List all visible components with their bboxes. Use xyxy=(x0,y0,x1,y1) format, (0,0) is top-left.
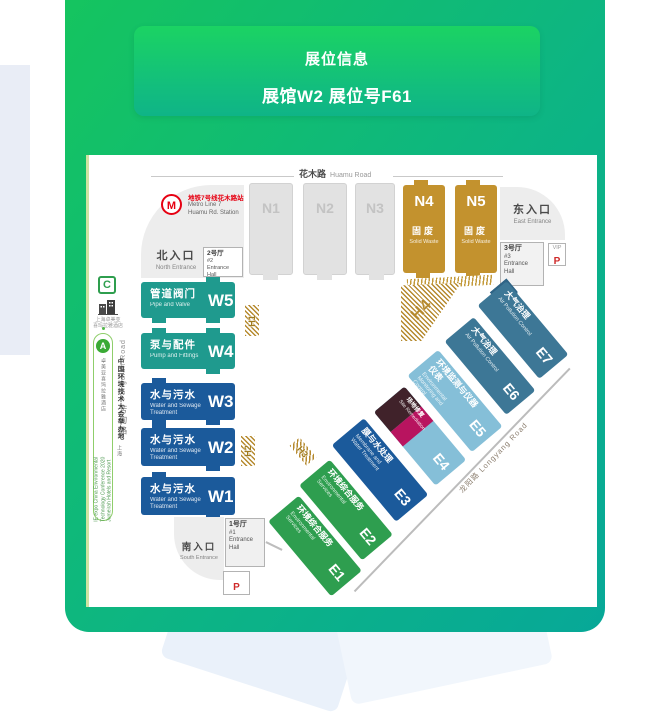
east-entrance-plaza: 东入口 East Entrance xyxy=(500,187,565,240)
connector-H1: H1 xyxy=(245,305,259,336)
gate xyxy=(206,368,220,374)
huamu-road-line-left xyxy=(151,176,294,177)
metro-logo-icon: M xyxy=(161,194,182,215)
gate xyxy=(206,328,220,334)
gate xyxy=(206,317,220,323)
legend-c-badge: C xyxy=(98,276,116,294)
hall-N2: N2 xyxy=(303,183,347,275)
conference-legend-pill: A 中国环境技术大会举办地 上海卓美亚喜玛拉雅酒店 IE expo China … xyxy=(93,333,113,521)
bg-shape-left xyxy=(0,65,30,355)
vip-parking-box: VIP P xyxy=(548,243,566,266)
gate xyxy=(152,378,166,384)
gate xyxy=(152,423,166,429)
hall-N4: N4 固废 Solid Waste xyxy=(403,185,445,273)
hall-W3: 水与污水Water and Sewage Treatment W3 xyxy=(141,383,235,420)
hotel-building-icon xyxy=(98,298,118,315)
gate xyxy=(152,317,166,323)
hall-W2: 水与污水Water and Sewage Treatment W2 xyxy=(141,428,235,466)
gate xyxy=(206,277,220,283)
conference-name-english: IE expo China Environmental Technology C… xyxy=(93,463,113,521)
north-entrance-label: 北入口 North Entrance xyxy=(145,247,207,271)
hall-N1: N1 xyxy=(249,183,293,275)
hall-W4: 泵与配件Pump and Fittings W4 xyxy=(141,333,235,369)
conference-name-vertical: 中国环境技术大会举办地 上海卓美亚喜玛拉雅酒店 xyxy=(95,358,127,462)
south-entrance-plaza: 南入口 South Entrance xyxy=(174,517,224,580)
south-parking-box: P xyxy=(223,571,250,595)
entrance-hall-2-box: 2号厅 #2 Entrance Hall xyxy=(203,247,243,277)
hotel-name-caption: 上海卓美亚 喜玛拉雅酒店 xyxy=(91,317,125,330)
gate xyxy=(152,472,166,478)
connector-H3: H3 xyxy=(290,437,317,465)
booth-info-title: 展位信息 xyxy=(134,26,540,69)
hall-W5: 管道阀门Pipe and Valve W5 xyxy=(141,282,235,318)
hall1-e1-connector xyxy=(265,541,282,551)
legend-link-dot xyxy=(102,327,105,330)
floorplan-map: 花木路Huamu Road M 地铁7号线花木路站 Metro Line 7 H… xyxy=(86,155,597,607)
gate xyxy=(206,465,220,471)
gate xyxy=(414,180,428,186)
connector-H2: H2 xyxy=(241,436,255,466)
booth-info-panel: 展位信息 展馆W2 展位号F61 花木路Huamu Road M 地铁7号线花木… xyxy=(65,0,605,632)
hall-N5: N5 固废 Solid Waste xyxy=(455,185,497,273)
gate xyxy=(152,328,166,334)
huamu-road-label: 花木路Huamu Road xyxy=(299,167,371,180)
conference-a-badge: A xyxy=(96,339,110,353)
gate xyxy=(416,272,430,278)
gate xyxy=(466,180,480,186)
gate xyxy=(206,419,220,425)
huamu-road-line-right xyxy=(393,176,503,177)
entrance-hall-1-box: 1号厅 #1 Entrance Hall xyxy=(225,518,265,567)
hall-W1: 水与污水Water and Sewage Treatment W1 xyxy=(141,477,235,515)
hall-N3: N3 xyxy=(355,183,395,275)
booth-info-card: 展位信息 展馆W2 展位号F61 xyxy=(134,26,540,116)
booth-location-text: 展馆W2 展位号F61 xyxy=(134,82,540,107)
